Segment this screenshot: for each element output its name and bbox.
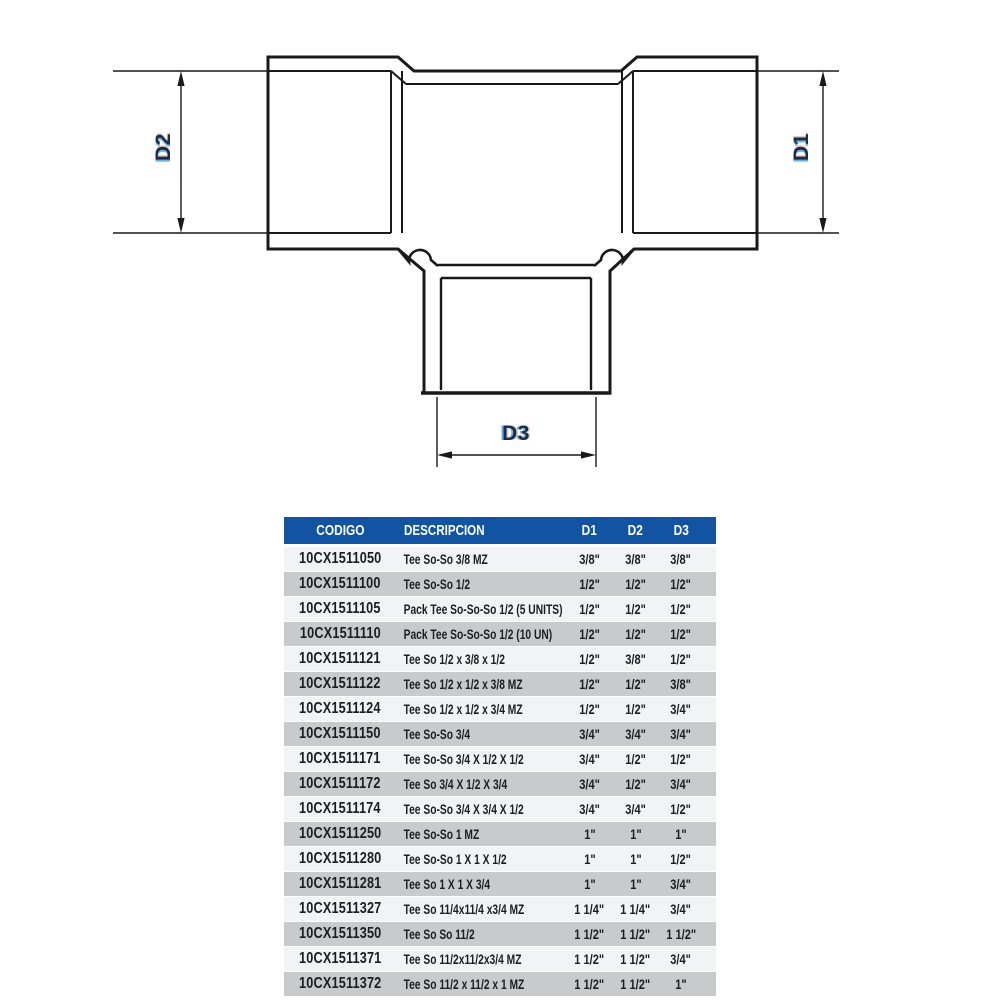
cell-desc: Tee So-So 1 MZ <box>396 821 566 846</box>
cell-code: 10CX1511122 <box>284 671 396 696</box>
right-socket-bore <box>618 71 757 233</box>
cell-desc: Tee So 1/2 x 3/8 x 1/2 <box>396 646 566 671</box>
cell-code: 10CX1511050 <box>284 546 396 571</box>
cell-code: 10CX1511280 <box>284 846 396 871</box>
cell-d1: 1" <box>566 821 613 846</box>
cell-desc: Tee So 11/2x11/2x3/4 MZ <box>396 946 566 971</box>
cell-desc: Tee So-So 3/8 MZ <box>396 546 566 571</box>
header-d3: D3 <box>658 517 716 546</box>
cell-d3: 3/8" <box>658 671 716 696</box>
left-socket-bore <box>268 71 406 233</box>
cell-desc: Tee So 3/4 X 1/2 X 3/4 <box>396 771 566 796</box>
cell-code: 10CX1511327 <box>284 896 396 921</box>
table-row: 10CX1511281Tee So 1 X 1 X 3/41"1"3/4" <box>284 871 716 896</box>
cell-d1: 1 1/2" <box>566 971 613 996</box>
table-row: 10CX1511150Tee So-So 3/43/4"3/4"3/4" <box>284 721 716 746</box>
cell-code: 10CX1511350 <box>284 921 396 946</box>
cell-d3: 3/4" <box>658 946 716 971</box>
table-row: 10CX1511050Tee So-So 3/8 MZ3/8"3/8"3/8" <box>284 546 716 571</box>
spec-table-header: CODIGO DESCRIPCION D1 D2 D3 <box>284 517 716 546</box>
cell-desc: Tee So-So 1 X 1 X 1/2 <box>396 846 566 871</box>
table-row: 10CX1511172Tee So 3/4 X 1/2 X 3/43/4"1/2… <box>284 771 716 796</box>
cell-desc: Tee So 11/2 x 11/2 x 1 MZ <box>396 971 566 996</box>
catalog-sheet: D2 D1 D3 CODIGO DESCRIPCION D1 D2 D3 10C… <box>0 0 1000 1000</box>
table-row: 10CX1511124Tee So 1/2 x 1/2 x 3/4 MZ1/2"… <box>284 696 716 721</box>
cell-code: 10CX1511105 <box>284 596 396 621</box>
cell-d3: 1 1/2" <box>658 921 716 946</box>
cell-d2: 1/2" <box>613 596 658 621</box>
cell-d1: 3/4" <box>566 721 613 746</box>
cell-d2: 3/4" <box>613 721 658 746</box>
cell-d1: 1 1/4" <box>566 896 613 921</box>
table-row: 10CX1511100Tee So-So 1/21/2"1/2"1/2" <box>284 571 716 596</box>
cell-d2: 1 1/2" <box>613 921 658 946</box>
cell-desc: Tee So So 11/2 <box>396 921 566 946</box>
cell-desc: Tee So 1 X 1 X 3/4 <box>396 871 566 896</box>
table-row: 10CX1511122Tee So 1/2 x 1/2 x 3/8 MZ1/2"… <box>284 671 716 696</box>
table-row: 10CX1511171Tee So-So 3/4 X 1/2 X 1/23/4"… <box>284 746 716 771</box>
cell-d1: 3/4" <box>566 746 613 771</box>
table-row: 10CX1511174Tee So-So 3/4 X 3/4 X 1/23/4"… <box>284 796 716 821</box>
cell-d2: 1/2" <box>613 571 658 596</box>
cell-d2: 1/2" <box>613 771 658 796</box>
cell-d2: 3/8" <box>613 546 658 571</box>
cell-code: 10CX1511281 <box>284 871 396 896</box>
table-row: 10CX1511372Tee So 11/2 x 11/2 x 1 MZ1 1/… <box>284 971 716 996</box>
cell-d1: 1/2" <box>566 696 613 721</box>
cell-d2: 3/8" <box>613 646 658 671</box>
cell-d1: 3/8" <box>566 546 613 571</box>
cell-desc: Tee So 11/4x11/4 x3/4 MZ <box>396 896 566 921</box>
cell-code: 10CX1511110 <box>284 621 396 646</box>
cell-desc: Pack Tee So-So-So 1/2 (5 UNITS) <box>396 596 566 621</box>
dimension-label-d2: D2 <box>134 117 194 177</box>
cell-code: 10CX1511371 <box>284 946 396 971</box>
dimension-label-d3: D3 <box>476 416 556 452</box>
header-d1: D1 <box>566 517 613 546</box>
cell-d3: 1/2" <box>658 571 716 596</box>
cell-code: 10CX1511121 <box>284 646 396 671</box>
header-row: CODIGO DESCRIPCION D1 D2 D3 <box>284 517 716 546</box>
cell-d2: 3/4" <box>613 796 658 821</box>
cell-d1: 1/2" <box>566 671 613 696</box>
table-row: 10CX1511371Tee So 11/2x11/2x3/4 MZ1 1/2"… <box>284 946 716 971</box>
dimension-label-d1: D1 <box>772 117 832 177</box>
cell-desc: Tee So 1/2 x 1/2 x 3/8 MZ <box>396 671 566 696</box>
cell-code: 10CX1511171 <box>284 746 396 771</box>
cell-code: 10CX1511250 <box>284 821 396 846</box>
cell-d1: 3/4" <box>566 771 613 796</box>
cell-code: 10CX1511124 <box>284 696 396 721</box>
cell-d3: 3/4" <box>658 696 716 721</box>
cell-d2: 1" <box>613 871 658 896</box>
cell-d1: 1 1/2" <box>566 921 613 946</box>
cell-d2: 1/2" <box>613 696 658 721</box>
table-row: 10CX1511280Tee So-So 1 X 1 X 1/21"1"1/2" <box>284 846 716 871</box>
cell-d1: 3/4" <box>566 796 613 821</box>
cell-d3: 1" <box>658 821 716 846</box>
cell-d3: 1/2" <box>658 621 716 646</box>
branch-socket <box>438 265 594 390</box>
cell-d1: 1/2" <box>566 571 613 596</box>
cell-code: 10CX1511174 <box>284 796 396 821</box>
table-row: 10CX1511327Tee So 11/4x11/4 x3/4 MZ1 1/4… <box>284 896 716 921</box>
junction-fillets <box>399 250 633 266</box>
header-codigo: CODIGO <box>284 517 396 546</box>
cell-d2: 1 1/4" <box>613 896 658 921</box>
cell-desc: Tee So-So 3/4 <box>396 721 566 746</box>
cell-d3: 1/2" <box>658 796 716 821</box>
cell-d1: 1" <box>566 846 613 871</box>
cell-d2: 1/2" <box>613 621 658 646</box>
cell-code: 10CX1511372 <box>284 971 396 996</box>
cell-d1: 1" <box>566 871 613 896</box>
cell-d3: 3/4" <box>658 771 716 796</box>
cell-desc: Pack Tee So-So-So 1/2 (10 UN) <box>396 621 566 646</box>
cell-d1: 1/2" <box>566 621 613 646</box>
table-body: 10CX1511050Tee So-So 3/8 MZ3/8"3/8"3/8"1… <box>284 546 716 996</box>
cell-desc: Tee So-So 3/4 X 3/4 X 1/2 <box>396 796 566 821</box>
cell-d3: 1" <box>658 971 716 996</box>
header-d2: D2 <box>613 517 658 546</box>
spec-table: CODIGO DESCRIPCION D1 D2 D3 10CX1511050T… <box>284 517 716 996</box>
table-row: 10CX1511250Tee So-So 1 MZ1"1"1" <box>284 821 716 846</box>
header-descripcion: DESCRIPCION <box>396 517 566 546</box>
cell-d3: 1/2" <box>658 596 716 621</box>
cell-desc: Tee So 1/2 x 1/2 x 3/4 MZ <box>396 696 566 721</box>
cell-d3: 3/4" <box>658 871 716 896</box>
cell-d1: 1 1/2" <box>566 946 613 971</box>
cell-desc: Tee So-So 1/2 <box>396 571 566 596</box>
table-row: 10CX1511110Pack Tee So-So-So 1/2 (10 UN)… <box>284 621 716 646</box>
cell-d3: 3/4" <box>658 721 716 746</box>
cell-d1: 1/2" <box>566 596 613 621</box>
cell-d3: 1/2" <box>658 746 716 771</box>
table-row: 10CX1511121Tee So 1/2 x 3/8 x 1/21/2"3/8… <box>284 646 716 671</box>
cell-d2: 1/2" <box>613 671 658 696</box>
table-row: 10CX1511350Tee So So 11/21 1/2"1 1/2"1 1… <box>284 921 716 946</box>
cell-d3: 1/2" <box>658 646 716 671</box>
cell-code: 10CX1511100 <box>284 571 396 596</box>
cell-d2: 1 1/2" <box>613 971 658 996</box>
cell-d1: 1/2" <box>566 646 613 671</box>
cell-d2: 1 1/2" <box>613 946 658 971</box>
cell-d3: 3/8" <box>658 546 716 571</box>
cell-d3: 1/2" <box>658 846 716 871</box>
cell-code: 10CX1511172 <box>284 771 396 796</box>
cell-d3: 3/4" <box>658 896 716 921</box>
cell-desc: Tee So-So 3/4 X 1/2 X 1/2 <box>396 746 566 771</box>
cell-d2: 1" <box>613 846 658 871</box>
cell-d2: 1" <box>613 821 658 846</box>
cell-code: 10CX1511150 <box>284 721 396 746</box>
table-row: 10CX1511105Pack Tee So-So-So 1/2 (5 UNIT… <box>284 596 716 621</box>
tee-outline <box>268 57 757 393</box>
cell-d2: 1/2" <box>613 746 658 771</box>
